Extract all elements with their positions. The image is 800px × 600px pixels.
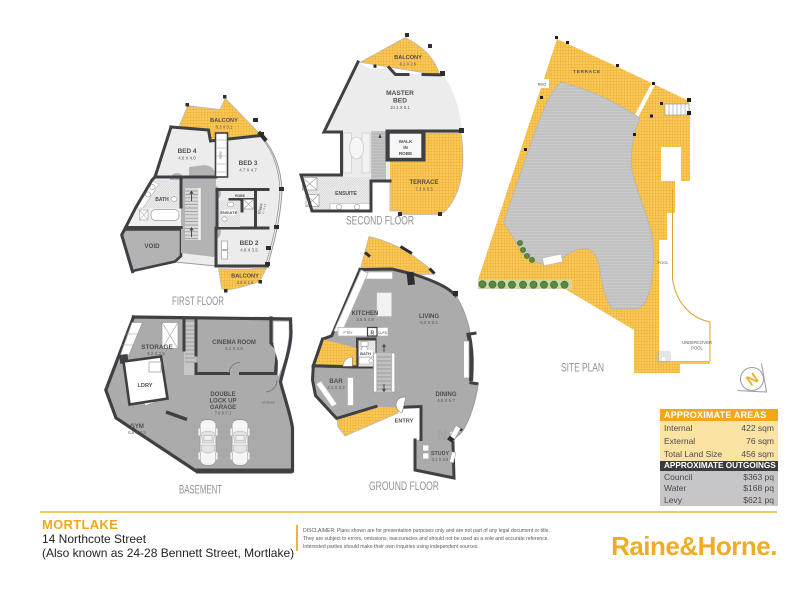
svg-text:MASTER: MASTER: [386, 90, 414, 97]
svg-text:ROBE: ROBE: [235, 194, 246, 198]
svg-text:4.7 X 4.7: 4.7 X 4.7: [239, 168, 257, 173]
svg-text:BALCONY: BALCONY: [394, 55, 422, 61]
svg-text:3.5 X 4.8: 3.5 X 4.8: [356, 317, 374, 322]
svg-text:R: R: [370, 330, 374, 336]
svg-text:BAR: BAR: [329, 378, 343, 385]
svg-text:GROUND FLOOR: GROUND FLOOR: [369, 481, 439, 493]
svg-text:BED 2: BED 2: [240, 240, 259, 247]
svg-text:ENSUITE: ENSUITE: [335, 191, 357, 197]
svg-text:P'TRY: P'TRY: [343, 331, 353, 335]
svg-text:CUPD: CUPD: [378, 331, 388, 335]
svg-text:4.5 X 5.7: 4.5 X 5.7: [437, 398, 455, 403]
svg-text:4.1 X 3.2: 4.1 X 3.2: [327, 385, 345, 390]
svg-text:BASEMENT: BASEMENT: [179, 485, 222, 497]
svg-text:4.6 X 4.0: 4.6 X 4.0: [178, 156, 196, 161]
svg-text:TERRACE: TERRACE: [573, 69, 601, 74]
svg-text:BATH: BATH: [360, 351, 371, 356]
svg-text:6.1 X 4.6: 6.1 X 4.6: [225, 346, 243, 351]
svg-text:N: N: [437, 427, 448, 444]
svg-text:BED 3: BED 3: [239, 160, 258, 167]
svg-text:4.8 X 3.5: 4.8 X 3.5: [240, 248, 258, 253]
svg-text:BED 4: BED 4: [178, 148, 197, 155]
svg-text:ROBE: ROBE: [219, 151, 223, 159]
svg-text:STORAGE: STORAGE: [262, 401, 275, 405]
svg-text:6.3 X 3.1: 6.3 X 3.1: [216, 125, 233, 130]
svg-text:TERRACE: TERRACE: [409, 180, 438, 186]
svg-text:BED: BED: [393, 98, 407, 105]
svg-text:6.2 X 6.1: 6.2 X 6.1: [420, 320, 438, 325]
svg-text:UNDERCOVER: UNDERCOVER: [682, 340, 712, 345]
svg-text:SITE PLAN: SITE PLAN: [561, 363, 604, 375]
svg-text:3.9 X 1.6: 3.9 X 1.6: [237, 280, 254, 285]
svg-text:7.3 X 6.5: 7.3 X 6.5: [415, 187, 433, 192]
svg-text:WALK: WALK: [399, 139, 413, 144]
svg-text:10.1 X 5.1: 10.1 X 5.1: [390, 105, 411, 110]
svg-text:SECOND FLOOR: SECOND FLOOR: [346, 216, 414, 228]
svg-text:POOL: POOL: [657, 260, 669, 265]
svg-text:ENTRY: ENTRY: [395, 419, 414, 425]
svg-text:ROBE: ROBE: [399, 151, 412, 156]
svg-text:4.2 X 3.5: 4.2 X 3.5: [147, 351, 165, 356]
svg-text:LDRY: LDRY: [137, 383, 152, 389]
svg-text:3.1 X 3.5: 3.1 X 3.5: [432, 457, 449, 462]
svg-text:BALCONY: BALCONY: [231, 274, 259, 280]
svg-text:STORAGE: STORAGE: [141, 344, 173, 351]
svg-text:BATH: BATH: [155, 197, 169, 203]
svg-text:POOL: POOL: [691, 346, 703, 351]
svg-text:FIRST FLOOR: FIRST FLOOR: [172, 296, 224, 308]
svg-text:6.1 X 2.9: 6.1 X 2.9: [400, 62, 417, 67]
svg-text:DOUBLE: DOUBLE: [210, 392, 235, 398]
svg-text:IN: IN: [403, 145, 408, 150]
svg-text:VOID: VOID: [144, 243, 160, 250]
svg-text:7.0 X 7.1: 7.0 X 7.1: [215, 411, 232, 416]
svg-text:BBQ: BBQ: [538, 82, 546, 87]
svg-text:LOCK UP: LOCK UP: [210, 399, 237, 405]
svg-text:ENSUITE: ENSUITE: [220, 210, 237, 215]
svg-text:BALCONY: BALCONY: [210, 118, 238, 124]
svg-text:6.6 X 3.5: 6.6 X 3.5: [128, 430, 146, 435]
